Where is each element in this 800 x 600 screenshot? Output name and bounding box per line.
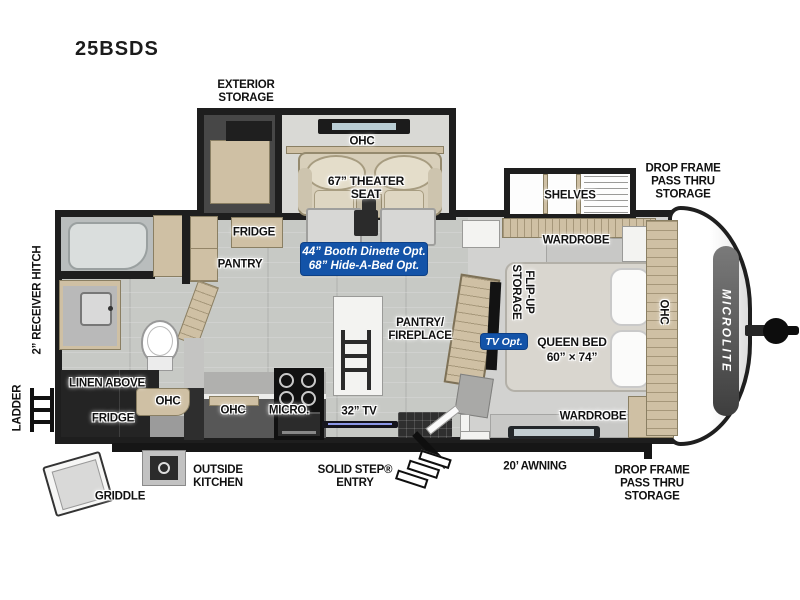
model-title: 25BSDS	[75, 38, 159, 61]
drop-frame-bottom-label: DROP FRAME PASS THRU STORAGE	[614, 465, 689, 504]
ladder-rung-2	[30, 408, 54, 412]
outside-kitchen-burner	[158, 462, 170, 474]
receiver-hitch-label: 2” RECEIVER HITCH	[32, 245, 45, 354]
pantry-fireplace-label: PANTRY/ FIREPLACE	[388, 317, 451, 343]
storage-cabinet	[210, 140, 270, 204]
tv-option-badge: TV Opt.	[481, 334, 527, 349]
flip-up-storage-label: FLIP-UP STORAGE	[509, 264, 535, 319]
tv-32-label: 32” TV	[341, 406, 376, 419]
queen-bed-label: QUEEN BED 60” × 74”	[537, 335, 607, 365]
tv-easel-rung-3	[341, 368, 371, 372]
tv-option-label: TV Opt.	[485, 336, 522, 348]
awning-bracket	[644, 443, 652, 459]
pantry-back-cabinet	[190, 216, 218, 282]
kitchen-ohc-label: OHC	[221, 405, 246, 418]
slide-window-glass	[332, 123, 396, 130]
tv-easel-rung-1	[341, 340, 371, 344]
griddle-label: GRIDDLE	[95, 491, 145, 504]
bath-bench	[150, 416, 184, 437]
bedroom-ohc-label: OHC	[657, 300, 670, 325]
wardrobe-bottom-label: WARDROBE	[560, 411, 627, 424]
toilet-tank	[147, 356, 173, 371]
wardrobe-top-label: WARDROBE	[543, 235, 610, 248]
micro-label: MICRO.	[269, 405, 309, 418]
dinette-option-line1: 44” Booth Dinette Opt.	[302, 245, 425, 259]
entry-halfwall-h	[460, 431, 490, 440]
bath-fridge-label: FRIDGE	[92, 413, 134, 426]
theater-seat-label: 67” THEATER SEAT	[328, 175, 404, 201]
shower-glass-door	[59, 271, 155, 279]
jack-handle	[783, 326, 799, 335]
bath-faucet	[108, 306, 113, 311]
linen-above-label: LINEN ABOVE	[69, 378, 145, 391]
brand-label: MICROLITE	[720, 289, 733, 373]
ladder-icon	[30, 388, 55, 432]
theater-armrest-left	[298, 168, 312, 212]
stove-burner-1	[279, 373, 294, 388]
stove-burner-2	[301, 373, 316, 388]
oven-handle	[282, 431, 316, 434]
ladder-rung-1	[30, 396, 54, 400]
ottoman-right	[380, 208, 436, 246]
awning-bar	[112, 443, 648, 452]
tv-easel-right	[367, 330, 371, 390]
bedroom-window-glass	[514, 429, 594, 436]
ladder-rung-3	[30, 420, 54, 424]
front-cap	[668, 206, 752, 446]
tv-32in-screen	[328, 423, 392, 425]
theater-armrest-right	[428, 168, 442, 212]
solid-step-label: SOLID STEP® ENTRY	[318, 464, 393, 490]
bath-ohc-label: OHC	[156, 396, 181, 409]
drop-frame-top-label: DROP FRAME PASS THRU STORAGE	[645, 163, 720, 202]
ladder-label: LADDER	[12, 385, 25, 432]
toilet-seat	[147, 326, 173, 356]
pantry-label: PANTRY	[218, 259, 263, 272]
awning-label: 20’ AWNING	[503, 461, 566, 474]
bath-wall	[182, 212, 190, 284]
slide-divider-wall	[275, 115, 282, 213]
floorplan-canvas: 44” Booth Dinette Opt. 68” Hide-A-Bed Op…	[0, 0, 800, 600]
tv-easel-rung-2	[341, 354, 371, 358]
tv-easel-left	[341, 330, 345, 390]
pillow-bottom	[610, 330, 650, 388]
storage-dark-item	[226, 121, 272, 141]
fridge-label: FRIDGE	[233, 227, 275, 240]
dinette-option-line2: 68” Hide-A-Bed Opt.	[309, 259, 420, 273]
outside-kitchen-label: OUTSIDE KITCHEN	[193, 464, 243, 490]
dinette-option-badge: 44” Booth Dinette Opt. 68” Hide-A-Bed Op…	[301, 243, 427, 275]
shower-pan	[68, 222, 148, 270]
exterior-storage-label: EXTERIOR STORAGE	[217, 79, 274, 105]
entry-steps	[392, 443, 458, 505]
nightstand-mid	[462, 220, 500, 248]
griddle	[42, 451, 114, 518]
bath-halfwall-upper	[184, 338, 204, 388]
center-console-floor	[354, 210, 378, 236]
bath-linen-cabinet	[153, 215, 183, 277]
pillow-top	[610, 268, 650, 326]
shelves-label: SHELVES	[544, 190, 595, 203]
bedroom-ohc-cabinet	[646, 220, 678, 436]
ohc-slide-label: OHC	[350, 136, 375, 149]
